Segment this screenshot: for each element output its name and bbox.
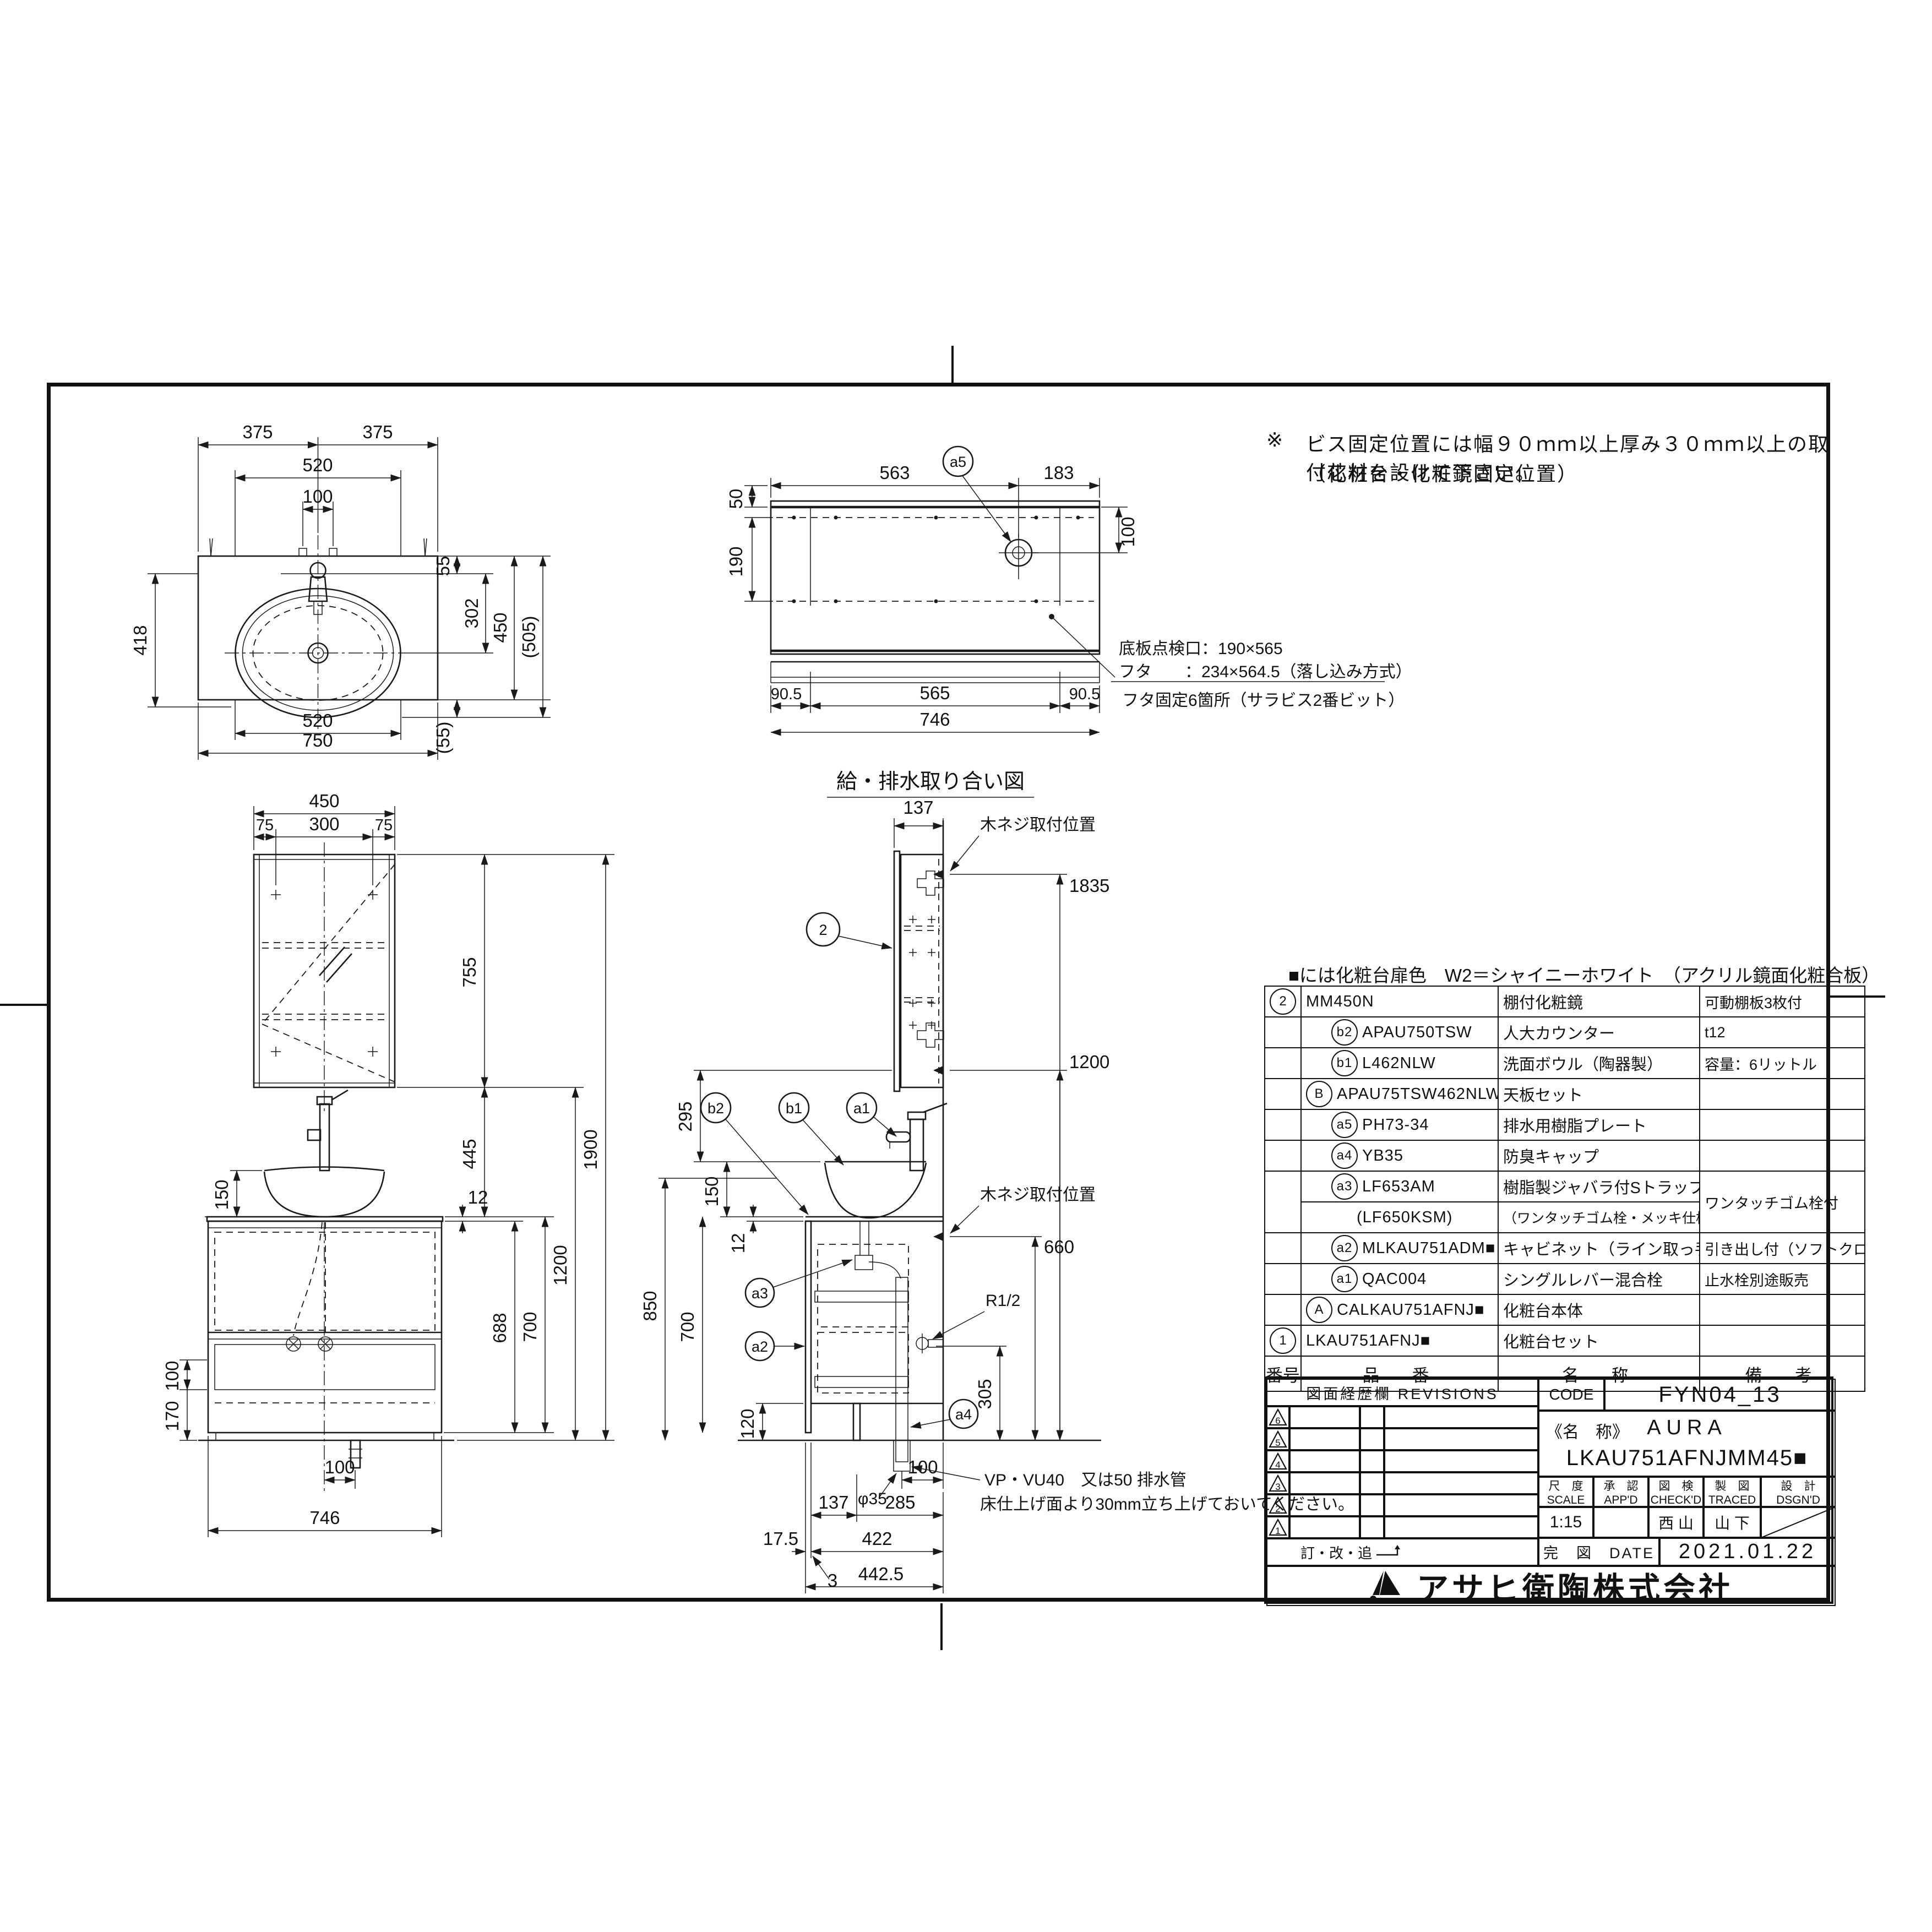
- plan-view: 375 375 520 100 418 55 302 450 (505) (55…: [94, 396, 633, 760]
- parts-row: 1LKAU751AFNJ■化粧台セット: [1265, 1325, 1865, 1356]
- revision-empty-cell: [1360, 1428, 1384, 1450]
- dsgnd-diagonal: [1761, 1507, 1836, 1538]
- front-view: 450 75 300 75 755 445 12 688: [154, 782, 650, 1624]
- svg-text:b2: b2: [708, 1100, 724, 1117]
- correction-arrow-icon: [1375, 1544, 1408, 1560]
- revision-triangle-cell: 4: [1266, 1450, 1289, 1472]
- title-block: 図面経歴欄 REVISIONS 654321 訂・改・追 CODE FYN04_…: [1264, 1376, 1833, 1604]
- part-number: MM450N: [1306, 993, 1374, 1011]
- parts-row: BAPAU75TSW462NLWA天板セット: [1265, 1079, 1865, 1109]
- plan-linework: [198, 535, 438, 729]
- company-logo: [1368, 1570, 1402, 1603]
- svg-text:295: 295: [675, 1101, 695, 1131]
- part-remarks: 容量：6リットル: [1700, 1048, 1865, 1079]
- parts-row: b2APAU750TSW人大カウンターt12: [1265, 1017, 1865, 1048]
- svg-text:183: 183: [1043, 462, 1074, 483]
- checkd-label-jp: 図 検: [1659, 1477, 1694, 1494]
- svg-text:137: 137: [903, 797, 933, 818]
- traced-label-en: TRACED: [1708, 1494, 1756, 1507]
- register-tick-left: [0, 1004, 48, 1006]
- revision-empty-cell: [1360, 1516, 1384, 1538]
- part-number: APAU75TSW462NLWA: [1337, 1085, 1498, 1103]
- checkd-label-en: CHECK'D: [1651, 1494, 1702, 1507]
- svg-text:12: 12: [728, 1233, 748, 1254]
- svg-text:375: 375: [362, 422, 393, 442]
- svg-text:563: 563: [879, 462, 910, 483]
- traced-value: 山 下: [1704, 1507, 1761, 1538]
- revision-triangle-cell: 3: [1266, 1472, 1289, 1494]
- revision-empty-cell: [1360, 1406, 1384, 1428]
- svg-text:100: 100: [1118, 516, 1138, 547]
- register-tick-top: [951, 346, 954, 384]
- parts-row: 2MM450N棚付化粧鏡可動棚板3枚付: [1265, 986, 1865, 1017]
- svg-text:R1/2: R1/2: [986, 1292, 1020, 1310]
- revision-triangle-cell: 2: [1266, 1494, 1289, 1516]
- svg-text:17.5: 17.5: [763, 1528, 798, 1549]
- svg-text:302: 302: [461, 598, 482, 628]
- parts-row: a5PH73-34排水用樹脂プレート: [1265, 1109, 1865, 1140]
- svg-text:90.5: 90.5: [771, 685, 802, 703]
- svg-text:688: 688: [489, 1313, 510, 1343]
- svg-text:a3: a3: [752, 1285, 768, 1302]
- svg-text:50: 50: [726, 489, 746, 509]
- door-color-note: ■には化粧台扉色 W2＝シャイニーホワイト （アクリル鏡面化粧合板）: [1288, 961, 1880, 987]
- plumbing-linework: [771, 501, 1385, 683]
- svg-text:底板点検口：190×565: 底板点検口：190×565: [1119, 640, 1283, 658]
- revision-empty-cell: [1384, 1494, 1538, 1516]
- plumbing-notes: 底板点検口：190×565 フタ ：234×564.5（落し込み方式） フタ固定…: [1119, 640, 1412, 710]
- part-number-balloon: a1: [1331, 1266, 1358, 1292]
- svg-text:418: 418: [130, 625, 150, 655]
- date-value: 2021.01.22: [1659, 1538, 1836, 1566]
- svg-text:55: 55: [433, 556, 453, 576]
- revision-empty-cell: [1289, 1494, 1360, 1516]
- svg-text:150: 150: [701, 1176, 722, 1206]
- part-remarks: [1700, 1140, 1865, 1171]
- svg-text:1835: 1835: [1069, 875, 1109, 896]
- traced-label-jp: 製 図: [1715, 1477, 1750, 1494]
- revision-empty-cell: [1289, 1472, 1360, 1494]
- svg-text:422: 422: [862, 1528, 892, 1549]
- part-remarks: [1700, 1325, 1865, 1356]
- svg-text:1: 1: [1275, 1526, 1280, 1536]
- part-number-balloon: 1: [1270, 1327, 1296, 1354]
- part-name: 棚付化粧鏡: [1498, 986, 1700, 1017]
- front-dimensions: 450 75 300 75 755 445 12 688: [162, 791, 614, 1537]
- parts-row: a3LF653AM樹脂製ジャバラ付Sトラップワンタッチゴム栓付: [1265, 1171, 1865, 1202]
- part-number: L462NLW: [1362, 1054, 1436, 1073]
- side-linework: [738, 820, 1101, 1471]
- revision-empty-cell: [1384, 1516, 1538, 1538]
- scale-header: 尺 度 SCALE: [1538, 1477, 1593, 1507]
- part-remarks: [1700, 1294, 1865, 1325]
- date-label: 完 図 DATE: [1538, 1538, 1659, 1566]
- svg-text:660: 660: [1044, 1237, 1074, 1257]
- part-number-balloon: a3: [1331, 1173, 1358, 1200]
- svg-text:445: 445: [459, 1139, 480, 1169]
- svg-text:4: 4: [1275, 1460, 1280, 1470]
- svg-text:100: 100: [302, 486, 333, 507]
- part-number: LKAU751AFNJ■: [1306, 1332, 1430, 1350]
- part-name: シングルレバー混合栓: [1498, 1264, 1700, 1294]
- part-number: PH73-34: [1362, 1116, 1429, 1134]
- part-name: 洗面ボウル（陶器製）: [1498, 1048, 1700, 1079]
- svg-text:137: 137: [818, 1492, 848, 1512]
- scale-label-en: SCALE: [1547, 1494, 1585, 1507]
- part-remarks: ワンタッチゴム栓付: [1700, 1171, 1865, 1233]
- svg-text:75: 75: [256, 817, 274, 834]
- part-remarks: 引き出し付（ソフトクローズ）: [1700, 1233, 1865, 1264]
- svg-text:(55): (55): [433, 722, 453, 754]
- svg-text:a4: a4: [955, 1406, 972, 1423]
- svg-text:520: 520: [302, 710, 333, 731]
- svg-text:90.5: 90.5: [1069, 685, 1100, 703]
- part-remarks: 止水栓別途販売: [1700, 1264, 1865, 1294]
- part-remarks: [1700, 1079, 1865, 1109]
- part-number-balloon: 2: [1270, 988, 1296, 1015]
- svg-text:750: 750: [302, 730, 333, 750]
- revision-empty-cell: [1289, 1516, 1360, 1538]
- dsgnd-header: 設 計 DSGN'D: [1761, 1477, 1836, 1507]
- svg-text:120: 120: [737, 1408, 758, 1439]
- plumbing-dimensions: 563 183 50 190 100 90.5 565 90.5: [726, 462, 1138, 732]
- part-number-balloon: a4: [1331, 1142, 1358, 1169]
- revision-empty-cell: [1384, 1428, 1538, 1450]
- svg-text:1900: 1900: [580, 1129, 601, 1169]
- part-remarks: 可動棚板3枚付: [1700, 986, 1865, 1017]
- traced-header: 製 図 TRACED: [1704, 1477, 1761, 1507]
- plumbing-balloon-a5: a5: [943, 447, 1011, 542]
- svg-text:75: 75: [375, 817, 393, 834]
- svg-text:850: 850: [640, 1291, 660, 1321]
- svg-text:フタ固定6箇所（サラビス2番ビット）: フタ固定6箇所（サラビス2番ビット）: [1122, 692, 1405, 710]
- parts-row: a4YB35防臭キャップ: [1265, 1140, 1865, 1171]
- revision-empty-cell: [1289, 1428, 1360, 1450]
- part-number: LF653AM: [1362, 1178, 1435, 1196]
- side-dimensions: 137 木ネジ取付位置 木ネジ取付位置 1835 1200 660 295 1: [640, 797, 1354, 1593]
- checkd-value: 西 山: [1648, 1507, 1704, 1538]
- part-name: 防臭キャップ: [1498, 1140, 1700, 1171]
- plumbing-view: a5 563 183 50 190 100: [699, 435, 1398, 809]
- front-vanity-linework: [198, 1090, 454, 1492]
- svg-text:1200: 1200: [1069, 1052, 1109, 1072]
- svg-text:木ネジ取付位置: 木ネジ取付位置: [980, 816, 1096, 834]
- svg-text:1200: 1200: [550, 1245, 570, 1285]
- part-number: QAC004: [1362, 1270, 1427, 1288]
- part-remarks: [1700, 1109, 1865, 1140]
- svg-text:フタ ：234×564.5（落し込み方式）: フタ ：234×564.5（落し込み方式）: [1119, 663, 1412, 681]
- svg-text:520: 520: [302, 455, 333, 475]
- appd-value: [1593, 1507, 1648, 1538]
- checkd-header: 図 検 CHECK'D: [1648, 1477, 1704, 1507]
- svg-text:2: 2: [1275, 1504, 1280, 1514]
- part-name: 化粧台本体: [1498, 1294, 1700, 1325]
- part-remarks: t12: [1700, 1017, 1865, 1048]
- part-number: YB35: [1362, 1147, 1403, 1165]
- product-code: LKAU751AFNJMM45■: [1539, 1446, 1835, 1471]
- parts-row: b1L462NLW洗面ボウル（陶器製）容量：6リットル: [1265, 1048, 1865, 1079]
- svg-text:755: 755: [459, 957, 480, 987]
- dsgnd-label-jp: 設 計: [1781, 1477, 1816, 1494]
- part-number: CALKAU751AFNJ■: [1337, 1301, 1484, 1319]
- svg-text:木ネジ取付位置: 木ネジ取付位置: [980, 1186, 1096, 1204]
- company-name: アサヒ衛陶株式会社: [1417, 1566, 1734, 1606]
- part-name: 化粧台セット: [1498, 1325, 1700, 1356]
- company-band: アサヒ衛陶株式会社: [1266, 1566, 1836, 1606]
- revision-empty-cell: [1289, 1406, 1360, 1428]
- svg-text:a1: a1: [853, 1100, 870, 1117]
- svg-text:150: 150: [211, 1179, 232, 1210]
- svg-text:100: 100: [162, 1360, 182, 1391]
- revision-empty-cell: [1360, 1494, 1384, 1516]
- svg-text:VP・VU40 又は50 排水管: VP・VU40 又は50 排水管: [984, 1471, 1187, 1489]
- svg-text:(505): (505): [519, 616, 539, 658]
- part-name: 天板セット: [1498, 1079, 1700, 1109]
- svg-text:305: 305: [975, 1379, 995, 1409]
- svg-text:565: 565: [919, 683, 950, 703]
- part-name-alt: （ワンタッチゴム栓・メッキ仕様）: [1498, 1202, 1700, 1233]
- parts-row: ACALKAU751AFNJ■化粧台本体: [1265, 1294, 1865, 1325]
- correction-row: 訂・改・追: [1266, 1538, 1538, 1566]
- part-number-alt: (LF650KSM): [1301, 1202, 1498, 1233]
- drawing-sheet: ※ ビス固定位置には幅９０ｍｍ以上厚み３０ｍｍ以上の取付芯材を設けて下さい。 （…: [0, 0, 1932, 1932]
- dsgnd-label-en: DSGN'D: [1776, 1494, 1820, 1507]
- svg-text:375: 375: [242, 422, 273, 442]
- svg-text:6: 6: [1275, 1416, 1280, 1426]
- code-value: FYN04_13: [1604, 1379, 1836, 1411]
- part-number-balloon: a5: [1331, 1112, 1358, 1138]
- revision-empty-cell: [1384, 1450, 1538, 1472]
- svg-text:300: 300: [309, 814, 339, 834]
- svg-text:190: 190: [726, 546, 746, 576]
- svg-text:3: 3: [828, 1570, 837, 1591]
- svg-text:b1: b1: [786, 1100, 802, 1117]
- revision-empty-cell: [1384, 1406, 1538, 1428]
- parts-row: a1QAC004シングルレバー混合栓止水栓別途販売: [1265, 1264, 1865, 1294]
- revision-triangle-cell: 5: [1266, 1428, 1289, 1450]
- svg-text:285: 285: [885, 1492, 915, 1512]
- parts-row: a2MLKAU751ADM■キャビネット（ライン取っ手）引き出し付（ソフトクロー…: [1265, 1233, 1865, 1264]
- revision-triangle-cell: 6: [1266, 1406, 1289, 1428]
- name-cell: 《名 称》 AURA LKAU751AFNJMM45■: [1538, 1411, 1836, 1477]
- svg-text:450: 450: [309, 791, 339, 811]
- revision-triangle-cell: 1: [1266, 1516, 1289, 1538]
- appd-header: 承 認 APP'D: [1593, 1477, 1648, 1507]
- svg-text:a2: a2: [752, 1338, 768, 1355]
- parts-table: 2MM450N棚付化粧鏡可動棚板3枚付b2APAU750TSW人大カウンターt1…: [1264, 986, 1865, 1392]
- svg-text:3: 3: [1275, 1482, 1280, 1492]
- svg-text:2: 2: [819, 922, 827, 938]
- svg-text:5: 5: [1275, 1438, 1280, 1448]
- scale-value: 1:15: [1538, 1507, 1593, 1538]
- appd-label-jp: 承 認: [1604, 1477, 1639, 1494]
- revision-empty-cell: [1384, 1472, 1538, 1494]
- revisions-header: 図面経歴欄 REVISIONS: [1266, 1379, 1538, 1406]
- code-label: CODE: [1538, 1379, 1604, 1411]
- revision-empty-cell: [1360, 1450, 1384, 1472]
- svg-text:700: 700: [677, 1311, 698, 1342]
- revision-empty-cell: [1289, 1450, 1360, 1472]
- front-mirror-linework: [254, 842, 395, 1112]
- dsgnd-value: [1761, 1507, 1836, 1538]
- svg-text:700: 700: [520, 1311, 540, 1342]
- svg-text:746: 746: [919, 709, 950, 730]
- part-number-balloon: A: [1306, 1297, 1332, 1323]
- svg-text:746: 746: [309, 1507, 340, 1528]
- part-name: 人大カウンター: [1498, 1017, 1700, 1048]
- svg-text:a5: a5: [950, 454, 966, 470]
- scale-label-jp: 尺 度: [1549, 1477, 1583, 1494]
- part-number: MLKAU751ADM■: [1362, 1239, 1495, 1258]
- product-series: AURA: [1539, 1416, 1835, 1440]
- side-balloons: 2 b2 b1 a1 a3 a2 a4: [701, 913, 978, 1428]
- appd-label-en: APP'D: [1604, 1494, 1637, 1507]
- svg-text:442.5: 442.5: [858, 1564, 904, 1584]
- part-name: キャビネット（ライン取っ手）: [1498, 1233, 1700, 1264]
- part-number: APAU750TSW: [1362, 1024, 1472, 1042]
- part-name: 樹脂製ジャバラ付Sトラップ: [1498, 1171, 1700, 1202]
- svg-text:12: 12: [468, 1187, 488, 1207]
- svg-text:100: 100: [324, 1457, 355, 1477]
- part-number-balloon: B: [1306, 1081, 1332, 1107]
- revision-empty-cell: [1360, 1472, 1384, 1494]
- svg-text:450: 450: [490, 612, 510, 643]
- part-number-balloon: b1: [1331, 1050, 1358, 1076]
- part-name: 排水用樹脂プレート: [1498, 1109, 1700, 1140]
- svg-text:170: 170: [162, 1401, 182, 1431]
- part-number-balloon: a2: [1331, 1235, 1358, 1261]
- correction-label: 訂・改・追: [1300, 1542, 1372, 1563]
- part-number-balloon: b2: [1331, 1019, 1358, 1046]
